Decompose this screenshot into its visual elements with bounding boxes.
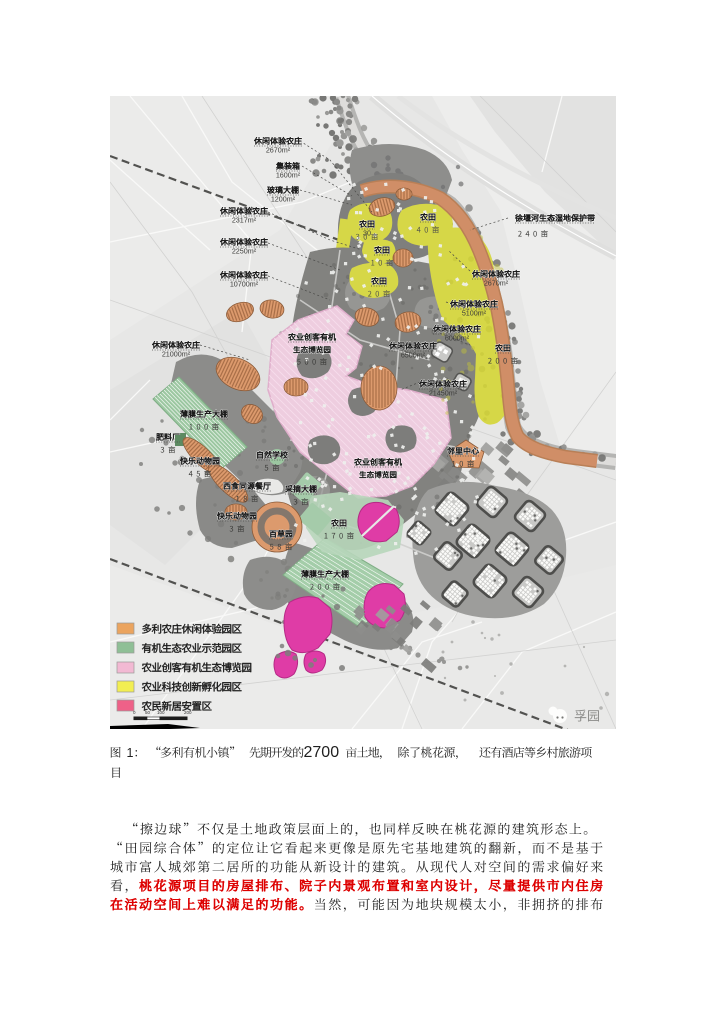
svg-text:2317m²: 2317m² xyxy=(232,216,257,225)
svg-text:5100m²: 5100m² xyxy=(462,309,487,318)
svg-text:200: 200 xyxy=(184,710,192,715)
svg-text:10700m²: 10700m² xyxy=(230,280,259,289)
svg-text:2670m²: 2670m² xyxy=(484,279,509,288)
svg-text:21450m²: 21450m² xyxy=(429,389,458,398)
svg-text:1: 1 xyxy=(127,746,134,760)
svg-text:1200m²: 1200m² xyxy=(271,195,296,204)
svg-text:2700: 2700 xyxy=(304,744,340,761)
svg-text:1600m²: 1600m² xyxy=(276,171,301,180)
svg-text:100: 100 xyxy=(157,710,165,715)
svg-text:2250m²: 2250m² xyxy=(232,247,257,256)
svg-text:6500m²: 6500m² xyxy=(401,351,426,360)
svg-text:2670m²: 2670m² xyxy=(266,146,291,155)
svg-text:50: 50 xyxy=(145,710,151,715)
svg-text:21000m²: 21000m² xyxy=(162,350,191,359)
svg-text:6000m²: 6000m² xyxy=(445,334,470,343)
